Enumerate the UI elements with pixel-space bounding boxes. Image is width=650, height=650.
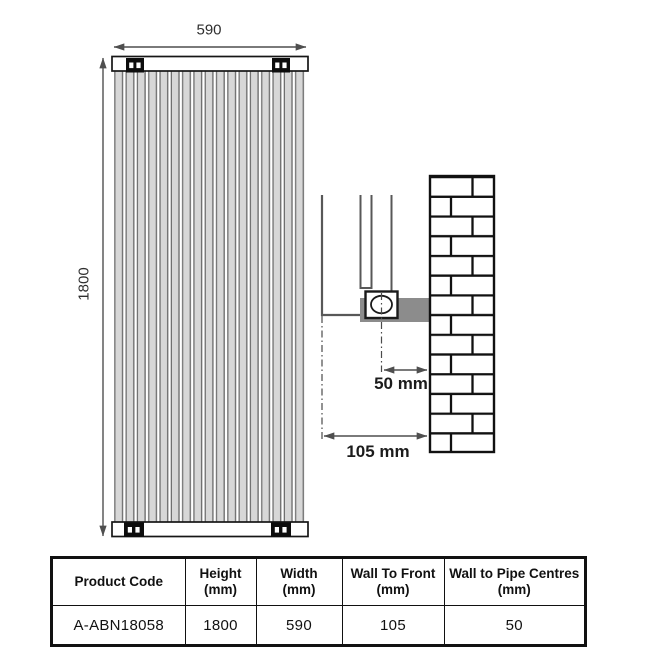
technical-drawing bbox=[0, 0, 650, 650]
header-label: Wall To Front bbox=[351, 566, 436, 581]
wall-to-front-label: 105 mm bbox=[346, 442, 409, 462]
bracket-top-right bbox=[272, 58, 290, 73]
header-label: Width bbox=[280, 566, 317, 581]
cell-width: 590 bbox=[256, 606, 342, 646]
side-view bbox=[322, 176, 494, 452]
header-unit: (mm) bbox=[345, 582, 442, 598]
header-label: Wall to Pipe Centres bbox=[449, 566, 579, 581]
radiator-front-profile-line bbox=[322, 195, 361, 315]
bracket-top-left bbox=[126, 58, 144, 73]
header-product-code: Product Code bbox=[52, 558, 185, 606]
front-view bbox=[103, 47, 308, 537]
radiator-tubes bbox=[114, 70, 306, 523]
spec-table: Product Code Height (mm) Width (mm) Wall… bbox=[51, 557, 586, 646]
wall-to-pipe-centres-label: 50 mm bbox=[374, 374, 428, 394]
cell-height: 1800 bbox=[185, 606, 256, 646]
cell-wall-to-pipe-centres: 50 bbox=[444, 606, 585, 646]
header-unit: (mm) bbox=[447, 582, 583, 598]
header-width: Width (mm) bbox=[256, 558, 342, 606]
header-height: Height (mm) bbox=[185, 558, 256, 606]
radiator-dimension-sheet: 590 1800 50 mm 105 mm Product Code Heigh… bbox=[0, 0, 650, 650]
width-dimension-label: 590 bbox=[196, 22, 221, 39]
spec-table-data-row: A-ABN18058 1800 590 105 50 bbox=[52, 606, 585, 646]
height-dimension-label: 1800 bbox=[76, 267, 93, 300]
header-unit: (mm) bbox=[188, 582, 254, 598]
bracket-bottom-right bbox=[271, 523, 291, 538]
header-label: Product Code bbox=[74, 574, 163, 589]
header-wall-to-front: Wall To Front (mm) bbox=[342, 558, 444, 606]
cell-wall-to-front: 105 bbox=[342, 606, 444, 646]
header-wall-to-pipe-centres: Wall to Pipe Centres (mm) bbox=[444, 558, 585, 606]
spec-table-header-row: Product Code Height (mm) Width (mm) Wall… bbox=[52, 558, 585, 606]
header-label: Height bbox=[200, 566, 242, 581]
cell-product-code: A-ABN18058 bbox=[52, 606, 185, 646]
brick-wall bbox=[430, 176, 494, 452]
bracket-bottom-left bbox=[124, 523, 144, 538]
header-unit: (mm) bbox=[259, 582, 340, 598]
